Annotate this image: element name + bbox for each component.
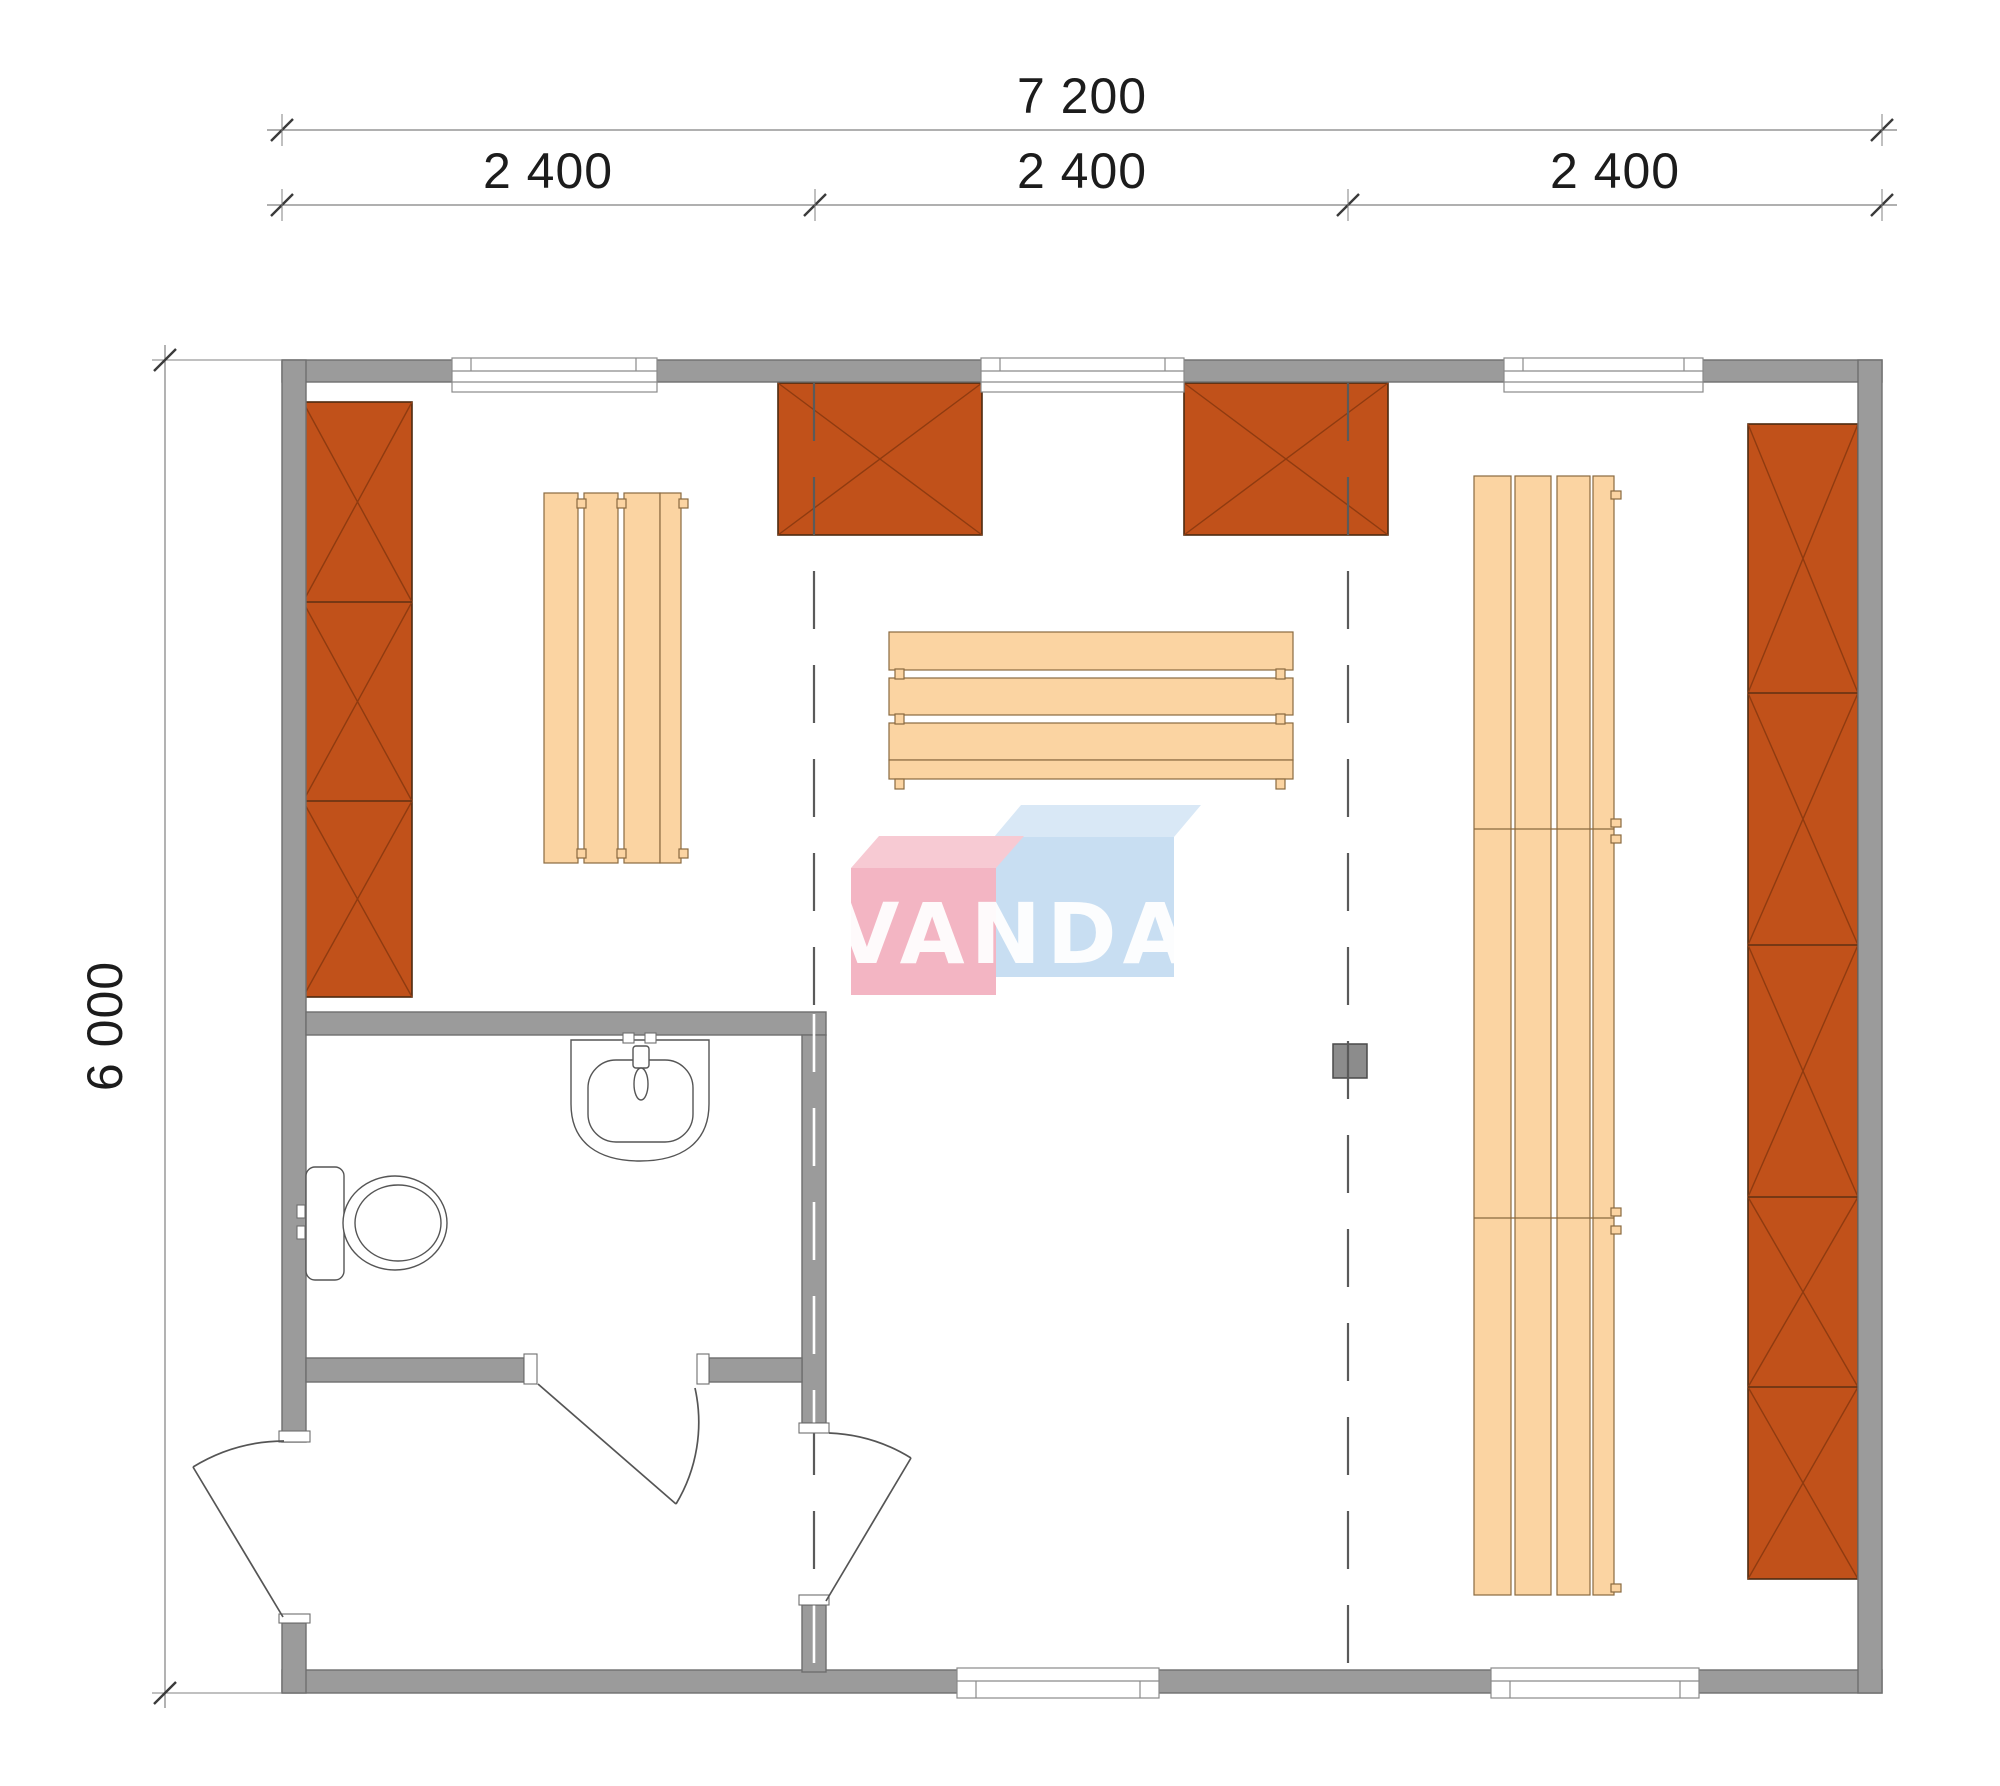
floor-plan-screenshot: VANDA 7 200 2 400 2 400 2 400 6 000 — [0, 0, 2000, 1786]
dim-label-bay-1: 2 400 — [483, 143, 613, 199]
stove-square — [1333, 1044, 1367, 1078]
bench-left — [544, 493, 688, 863]
bathroom-door — [524, 1354, 709, 1504]
window-top-2 — [981, 358, 1184, 392]
wardrobe-right — [1748, 424, 1858, 1579]
toilet — [297, 1167, 447, 1280]
window-bottom-2 — [1491, 1668, 1699, 1698]
entry-door — [193, 1431, 310, 1623]
logo-text: VANDA — [834, 885, 1193, 983]
bench-center — [889, 632, 1293, 789]
window-top-3 — [1504, 358, 1703, 392]
sink — [571, 1033, 709, 1161]
dimension-total-width: 7 200 — [267, 68, 1897, 146]
logo-pink-flap — [851, 836, 1024, 868]
heater-box-right — [1184, 383, 1388, 535]
interior-walls — [306, 1012, 826, 1672]
heater-box-left — [778, 383, 982, 535]
dim-label-total-height: 6 000 — [77, 961, 133, 1091]
dimension-total-height: 6 000 — [77, 345, 282, 1708]
dimension-bays: 2 400 2 400 2 400 — [267, 143, 1897, 221]
window-bottom-1 — [957, 1668, 1159, 1698]
bench-right — [1474, 476, 1621, 1595]
vanda-logo: VANDA — [834, 805, 1201, 995]
window-top-1 — [452, 358, 657, 392]
floor-plan: VANDA 7 200 2 400 2 400 2 400 6 000 — [0, 0, 2000, 1786]
wardrobe-left — [303, 402, 412, 997]
dim-label-total-width: 7 200 — [1017, 68, 1147, 124]
dim-label-bay-3: 2 400 — [1550, 143, 1680, 199]
logo-blue-flap — [994, 805, 1201, 837]
hall-door — [799, 1423, 911, 1605]
dim-label-bay-2: 2 400 — [1017, 143, 1147, 199]
